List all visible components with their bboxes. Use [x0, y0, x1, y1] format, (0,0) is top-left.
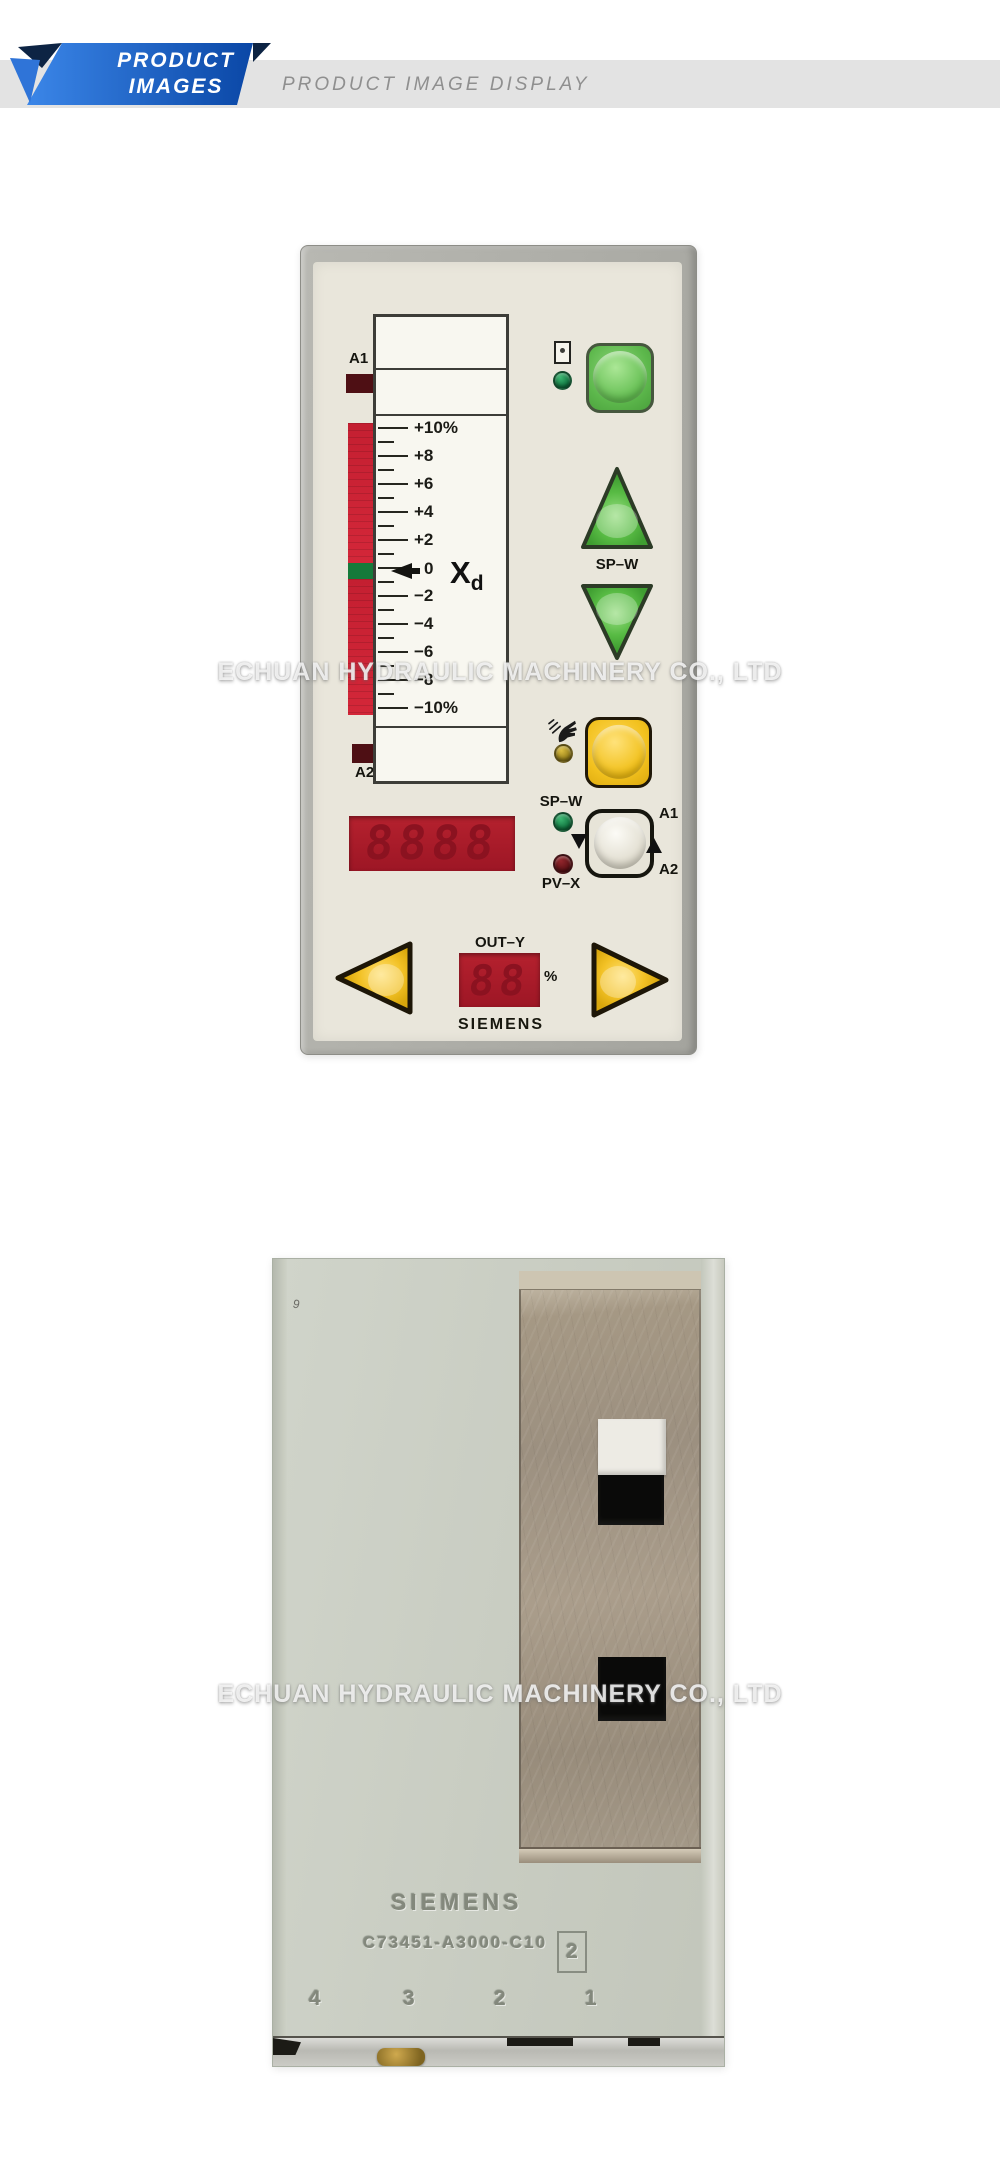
heatsink-top-edge: [519, 1271, 701, 1290]
sp-w-button-label: SP–W: [584, 556, 650, 573]
deviation-bar-lower: [348, 579, 375, 715]
cycle-left-arrow-icon: [571, 834, 587, 849]
scale-minor-tick: [378, 525, 394, 527]
watermark-rear: ECHUAN HYDRAULIC MACHINERY CO., LTD: [0, 1680, 1000, 1709]
scale-tick: [378, 427, 408, 429]
watermark-front: ECHUAN HYDRAULIC MACHINERY CO., LTD: [0, 658, 1000, 687]
scale-tick-label: +4: [414, 502, 433, 522]
process-value-digits: 8888: [363, 816, 502, 871]
controller-front-photo: A1 A2 +10% +8 +6 +4 +2 0: [300, 245, 697, 1055]
out-y-label: OUT–Y: [467, 934, 533, 951]
pin-number: 3: [403, 1987, 415, 2011]
scale-tick: [378, 455, 408, 457]
setpoint-up-button[interactable]: [578, 464, 656, 552]
part-number: C73451-A3000-C10: [363, 1933, 547, 1953]
scale-divider: [376, 414, 506, 416]
scale-tick: [378, 707, 408, 709]
display-select-button[interactable]: [585, 809, 654, 878]
heatsink-bottom-edge: [519, 1847, 701, 1863]
percent-label: %: [544, 968, 557, 985]
manual-button-dome: [592, 724, 646, 778]
scale-minor-tick: [378, 581, 394, 583]
scale-minor-tick: [378, 693, 394, 695]
controller-rear-photo: 9 SIEMENS C73451-A3000-C10 2 4 3 2 1: [272, 1258, 725, 2067]
version-box: 2: [557, 1931, 587, 1973]
process-value-display: 8888: [349, 816, 515, 871]
output-increase-button[interactable]: [590, 940, 672, 1020]
case-right-edge: [701, 1259, 724, 2038]
deviation-bar-green-segment: [348, 563, 375, 579]
scale-tick-label: +8: [414, 446, 433, 466]
scale-minor-tick: [378, 497, 394, 499]
scale-tick-label: −10%: [414, 698, 458, 718]
plate-scratches: [521, 1271, 699, 1863]
ribbon-text: PRODUCT IMAGES: [96, 48, 256, 100]
deviation-pointer-icon: [391, 563, 412, 579]
case-bottom-band: [273, 2036, 724, 2066]
scale-minor-tick: [378, 637, 394, 639]
deviation-pointer-tail: [411, 568, 420, 574]
status-indicator-window: [554, 341, 571, 364]
siemens-logo-front: SIEMENS: [441, 1016, 561, 1034]
scale-tick: [378, 483, 408, 485]
siemens-logo-rear: SIEMENS: [391, 1889, 523, 1916]
scale-tick: [378, 623, 408, 625]
sp-w-led: [553, 812, 573, 832]
connector-opening-upper: [598, 1475, 664, 1525]
scale-minor-tick: [378, 469, 394, 471]
scale-minor-tick: [378, 609, 394, 611]
alarm-a1-label: A1: [349, 350, 368, 367]
version-number: 2: [566, 1940, 578, 1963]
pin-number: 2: [494, 1987, 506, 2011]
scale-minor-tick: [378, 553, 394, 555]
smudge-mark: 9: [291, 1296, 301, 1311]
manual-mode-button[interactable]: [585, 717, 652, 788]
ribbon-line2: IMAGES: [96, 74, 256, 100]
pv-x-led: [553, 854, 573, 874]
brass-terminal: [377, 2048, 425, 2066]
manual-hand-icon: [547, 718, 577, 744]
case-left-edge: [273, 1259, 287, 2038]
heatsink-plate: [519, 1271, 701, 1863]
scale-tick: [378, 651, 408, 653]
pin-number: 4: [309, 1987, 321, 2011]
bottom-slot-right: [628, 2038, 660, 2046]
scale-window: +10% +8 +6 +4 +2 0 −2 −4 −6: [373, 314, 509, 784]
manual-mode-led: [554, 744, 573, 763]
connector-slider: [598, 1419, 666, 1475]
scale-tick: [378, 595, 408, 597]
toggle-a1-label: A1: [659, 805, 678, 822]
scale-divider: [376, 368, 506, 370]
product-images-ribbon: PRODUCT IMAGES: [8, 43, 288, 109]
select-button[interactable]: [586, 343, 654, 413]
page: PRODUCT IMAGE DISPLAY PRODUCT IMAGES A1: [0, 0, 1000, 2160]
toggle-a2-label: A2: [659, 861, 678, 878]
scale-tick-label: +2: [414, 530, 433, 550]
output-decrease-button[interactable]: [332, 939, 414, 1017]
sp-w-led-label: SP–W: [537, 793, 585, 810]
scale-zero-label: 0: [424, 559, 433, 579]
bottom-slot-middle: [507, 2038, 573, 2046]
bottom-notch-left: [273, 2038, 301, 2055]
display-select-dome: [594, 816, 646, 868]
scale-divider: [376, 726, 506, 728]
output-value-digits: 88: [467, 956, 533, 1005]
cycle-right-arrow-icon: [646, 838, 662, 853]
select-button-dome: [593, 351, 647, 403]
select-led: [553, 371, 572, 390]
pin-number: 1: [585, 1987, 597, 2011]
scale-tick-label: +6: [414, 474, 433, 494]
scale-minor-tick: [378, 441, 394, 443]
xd-label: Xd: [450, 555, 484, 596]
ribbon-line1: PRODUCT: [96, 48, 256, 74]
alarm-a2-label: A2: [355, 764, 374, 781]
scale-tick-label: −2: [414, 586, 433, 606]
output-value-display: 88: [459, 953, 540, 1007]
scale-tick-label: +10%: [414, 418, 458, 438]
setpoint-down-button[interactable]: [578, 581, 656, 663]
pv-x-led-label: PV–X: [535, 875, 587, 892]
scale-tick: [378, 539, 408, 541]
scale-tick-label: −4: [414, 614, 433, 634]
header-title: PRODUCT IMAGE DISPLAY: [282, 74, 590, 96]
status-dot-icon: [560, 348, 565, 353]
deviation-bar-upper: [348, 423, 375, 563]
scale-tick: [378, 511, 408, 513]
